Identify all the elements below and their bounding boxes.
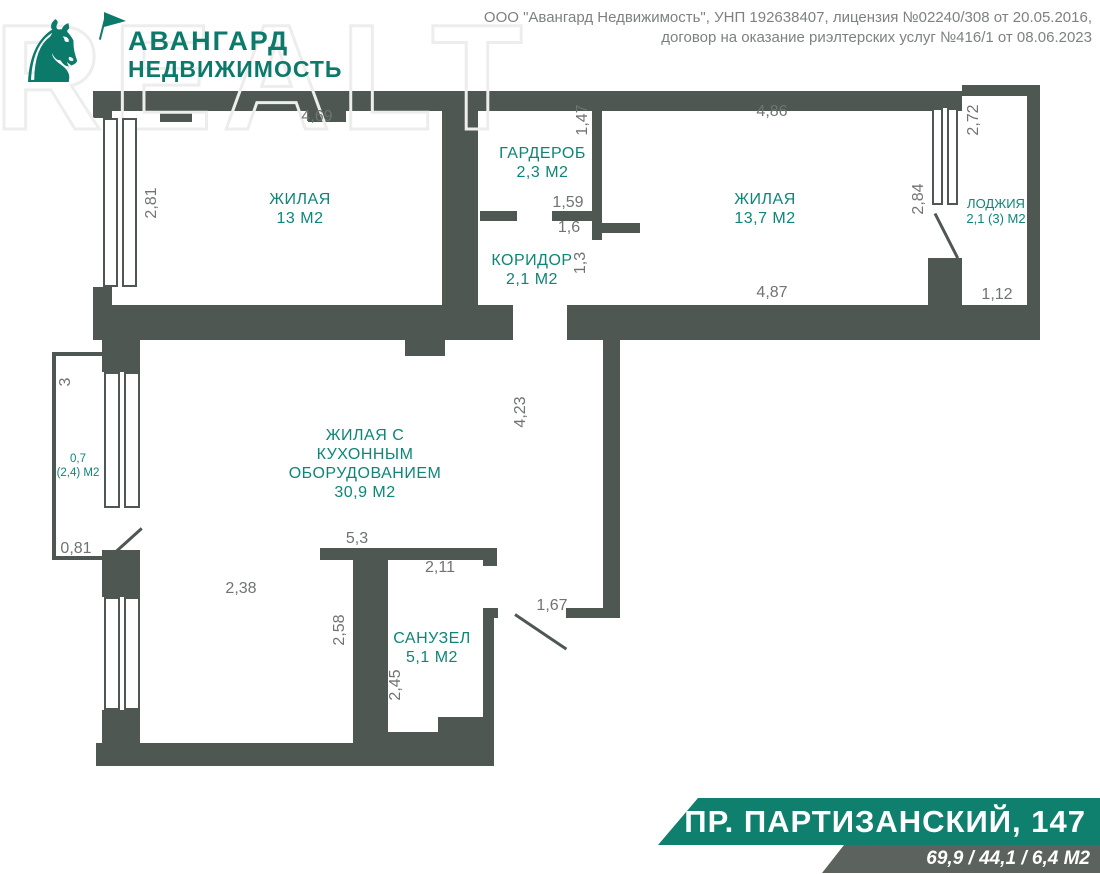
dim-room13-left: 2,81 bbox=[143, 163, 161, 243]
room-label-zhilaya-13: ЖИЛАЯ13 М2 bbox=[235, 191, 365, 229]
dim-koridor-height: 1,3 bbox=[572, 223, 590, 303]
window-pane bbox=[104, 597, 120, 710]
window-pane bbox=[103, 118, 118, 287]
dim-room137-top: 4,86 bbox=[732, 103, 812, 121]
knight-horse-icon: ♞ bbox=[14, 10, 91, 96]
dim-bigroom-wall: 5,3 bbox=[317, 530, 397, 548]
dim-sanuzel-inner: 2,45 bbox=[387, 645, 405, 725]
room-label-balcony: 0,7(2,4) М2 bbox=[47, 453, 109, 480]
wall-left-upper-b bbox=[93, 287, 112, 307]
dim-bigroom-right: 4,23 bbox=[512, 372, 530, 452]
dim-sanuzel-left: 2,58 bbox=[331, 590, 349, 670]
wall-sanuzel-step bbox=[438, 717, 483, 732]
floor-plan-page: REALT ♞ АВАНГАРД НЕДВИЖИМОСТЬ ООО "Аванг… bbox=[0, 0, 1100, 874]
window-room137-loggia bbox=[932, 108, 958, 205]
window-pane bbox=[932, 108, 943, 205]
window-pane bbox=[104, 372, 120, 508]
dim-sanuzel-top: 2,11 bbox=[400, 559, 480, 577]
dim-loggia-top: 2,72 bbox=[965, 80, 983, 160]
window-pane bbox=[122, 118, 137, 287]
wall-mid-right bbox=[567, 305, 1040, 340]
wall-sanuzel-jamb bbox=[483, 608, 498, 618]
window-pane bbox=[947, 108, 958, 205]
wall-sanuzel-right bbox=[483, 608, 494, 743]
wall-column-sanuzel-left bbox=[353, 560, 388, 743]
window-bigroom-upper bbox=[104, 372, 140, 508]
wall-bigroom-right bbox=[603, 340, 620, 618]
door-entrance bbox=[514, 613, 567, 650]
room-label-bigroom: ЖИЛАЯ С КУХОННЫМ ОБОРУДОВАНИЕМ30,9 М2 bbox=[280, 427, 450, 503]
room-label-loggia: ЛОДЖИЯ2,1 (3) М2 bbox=[953, 196, 1039, 227]
wall-left-lower-a bbox=[102, 340, 140, 372]
window-pane bbox=[124, 597, 140, 710]
dim-garderob-door: 1,59 bbox=[528, 194, 608, 212]
wall-left-lower-c bbox=[102, 710, 140, 743]
wall-bottom bbox=[96, 743, 494, 766]
room-label-zhilaya-137: ЖИЛАЯ13,7 М2 bbox=[700, 191, 830, 229]
window-room13-left bbox=[103, 118, 137, 287]
company-license-info: ООО "Авангард Недвижимость", УНП 1926384… bbox=[484, 8, 1092, 49]
logo-title: АВАНГАРД bbox=[128, 26, 289, 57]
wall-sanuzel-top-notch bbox=[483, 560, 497, 566]
flag-icon bbox=[104, 12, 126, 27]
dim-koridor-width: 1,6 bbox=[529, 219, 609, 237]
areas-banner: 69,9 / 44,1 / 6,4 М2 bbox=[822, 845, 1100, 873]
window-bigroom-lower bbox=[104, 597, 140, 710]
dim-balcony-bottom: 0,81 bbox=[36, 540, 116, 558]
wall-sanuzel-fill bbox=[388, 732, 483, 743]
dim-entrance: 1,67 bbox=[512, 597, 592, 615]
dim-balcony-side: 3 bbox=[57, 342, 75, 422]
dim-loggia-bottom: 1,12 bbox=[957, 286, 1037, 304]
dim-garderob-right: 1,47 bbox=[574, 80, 592, 160]
dim-room137-bottom: 4,87 bbox=[732, 284, 812, 302]
dim-room13-top: 4,69 bbox=[277, 108, 357, 126]
dim-room137-right: 2,84 bbox=[910, 159, 928, 239]
dim-bigroom-left: 2,38 bbox=[201, 580, 281, 598]
wall-nub-below-mid bbox=[405, 340, 445, 356]
logo-subtitle: НЕДВИЖИМОСТЬ bbox=[128, 56, 342, 83]
address-banner: ПР. ПАРТИЗАНСКИЙ, 147 bbox=[658, 798, 1100, 845]
window-pane bbox=[124, 372, 140, 508]
wall-garderob-bottom-left bbox=[480, 211, 517, 221]
